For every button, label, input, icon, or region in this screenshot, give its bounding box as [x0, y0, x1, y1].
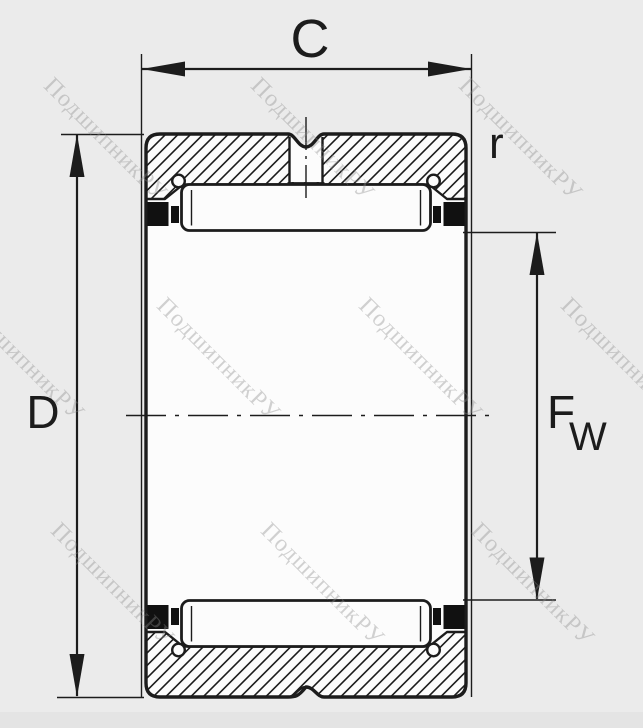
seal-block [433, 206, 441, 223]
dim-Fw-extension-lines [463, 233, 556, 601]
seal-block [148, 605, 169, 629]
seal-block [433, 608, 441, 625]
seal-block [444, 202, 465, 226]
seal-block [171, 608, 179, 625]
bearing-drawing-page: C D r F W ПодшипникРУПодшипникРУПодшипни… [0, 0, 643, 728]
dim-D-arrow-top [70, 134, 85, 177]
dim-Fw-arrow-top [530, 233, 545, 276]
dim-C-arrow-left [142, 62, 185, 77]
label-r: r [489, 119, 504, 168]
page-bottom-strip [0, 712, 643, 728]
seal-block [148, 202, 169, 226]
dim-C-arrow-right [428, 62, 471, 77]
cage-lug-circle [427, 644, 440, 657]
label-Fw-sub: W [569, 415, 607, 459]
dim-D-arrow-bottom [70, 654, 85, 697]
seal-block [171, 206, 179, 223]
needle-roller-bottom [182, 601, 431, 647]
dim-Fw-arrow-bottom [530, 558, 545, 601]
cage-lug-circle [172, 175, 185, 188]
label-D: D [26, 386, 59, 438]
cage-lug-circle [172, 644, 185, 657]
label-C: C [291, 9, 330, 69]
cage-lug-circle [427, 175, 440, 188]
seal-block [444, 605, 465, 629]
bearing-cross-section-drawing: C D r F W [0, 0, 643, 728]
